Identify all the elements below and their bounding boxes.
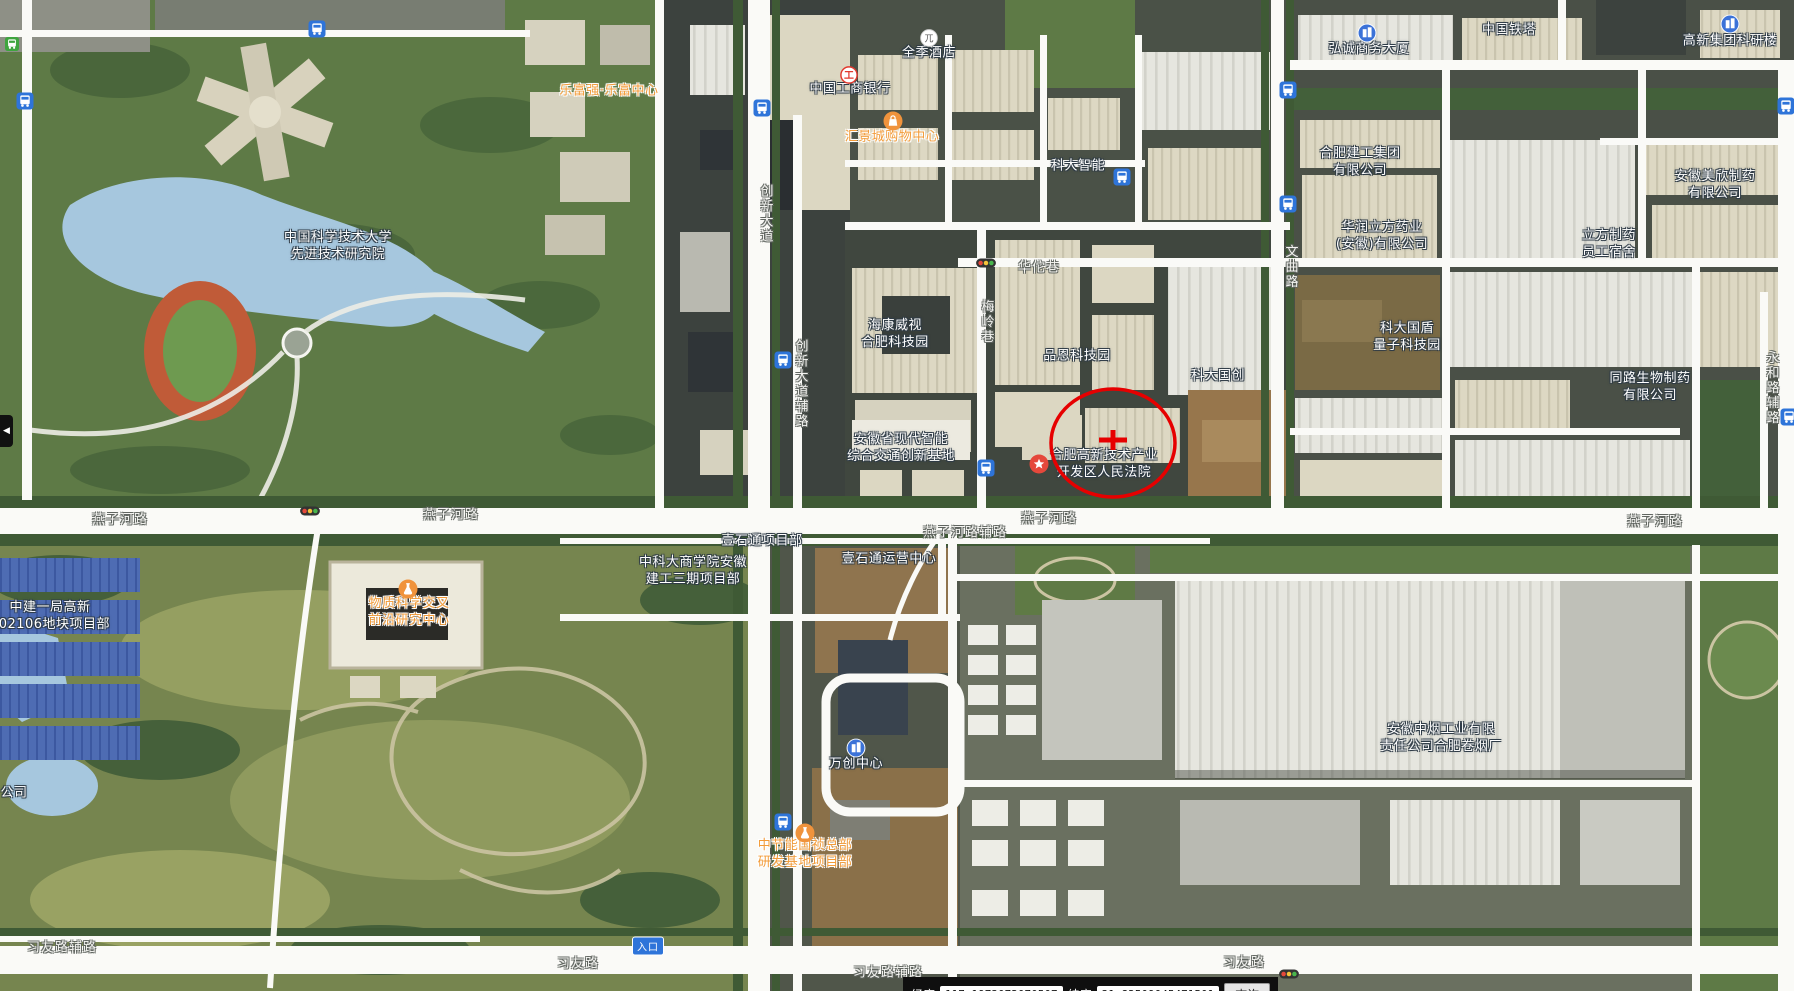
road-label: 习友路辅路 <box>27 937 97 956</box>
keda-guochuang-label[interactable]: 科大国创 <box>1191 369 1245 386</box>
traffic-light-icon <box>1279 970 1299 979</box>
bus-stop-icon[interactable] <box>754 100 771 117</box>
svg-text:兀: 兀 <box>924 35 933 45</box>
road-label: 华佗巷 <box>1018 257 1060 276</box>
road-label: 永和路辅路 <box>1762 351 1781 426</box>
collapse-arrow-icon: ◀ <box>3 426 10 436</box>
place-label-line: 前沿研究中心 <box>368 613 449 630</box>
court-poi-icon[interactable] <box>1030 455 1049 474</box>
zhongjieneng-guozhen-project-label[interactable]: 中节能国祯总部研发基地项目部 <box>758 838 853 872</box>
query-button[interactable]: 查询 <box>1224 983 1270 991</box>
place-label-line: 中国铁塔 <box>1482 23 1536 40</box>
science-project-poi-icon[interactable] <box>399 580 418 599</box>
place-label-line: 全季酒店 <box>902 46 956 63</box>
construction-project-poi-icon[interactable] <box>796 824 815 843</box>
place-label-line: 合肥科技园 <box>861 335 929 352</box>
bus-stop-icon[interactable] <box>1114 169 1131 186</box>
road-label: 燕子河路 <box>1627 511 1683 530</box>
latitude-label: 纬度 <box>1068 986 1092 991</box>
office-building-poi-icon[interactable] <box>847 739 866 758</box>
material-science-research-center-label[interactable]: 物质科学交叉前沿研究中心 <box>368 596 449 630</box>
entrance-badge: 入口 <box>632 937 664 956</box>
edge-clipped-company-label-label[interactable]: 公司 <box>0 786 27 803</box>
china-tower-label[interactable]: 中国铁塔 <box>1482 23 1536 40</box>
icbc-bank-label[interactable]: 中国工商银行 <box>809 82 890 99</box>
coordinate-statusbar: 经度 117.1973072070507 纬度 31.8250904547150… <box>903 977 1278 991</box>
traffic-light-icon <box>976 259 996 268</box>
place-label-line: 科大国创 <box>1191 369 1245 386</box>
keda-guodun-quantum-park-label[interactable]: 科大国盾量子科技园 <box>1373 321 1441 355</box>
bank-poi-icon[interactable]: 工 <box>840 66 858 84</box>
place-label-line: (安徽)有限公司 <box>1336 237 1428 254</box>
svg-text:工: 工 <box>844 71 854 82</box>
shopping-poi-icon[interactable] <box>884 112 903 131</box>
tonglu-bio-pharma-label[interactable]: 同路生物制药有限公司 <box>1609 371 1690 405</box>
place-label-line: 公司 <box>0 786 27 803</box>
traffic-light-icon <box>300 507 320 516</box>
place-label-line: 中国科学技术大学 <box>284 230 392 247</box>
hikvision-hefei-techpark-label[interactable]: 海康威视合肥科技园 <box>861 318 929 352</box>
road-label: 燕子河路 <box>1021 508 1077 527</box>
place-label-line: 安徽美欣制药 <box>1674 169 1755 186</box>
bus-stop-icon[interactable] <box>1778 98 1794 115</box>
place-label-line: 华润立方药业 <box>1336 220 1428 237</box>
place-label-line: 中建一局高新 <box>0 600 110 617</box>
hefei-jiangong-group-label[interactable]: 合肥建工集团有限公司 <box>1319 146 1400 180</box>
office-building-poi-icon[interactable] <box>1358 24 1377 43</box>
place-label-line: 高新集团科研楼 <box>1683 34 1778 51</box>
ustc-business-school-project-label[interactable]: 中科大商学院安徽建工三期项目部 <box>639 555 747 589</box>
anhui-intelligent-transport-base-label[interactable]: 安徽省现代智能综合交通创新基地 <box>847 432 955 466</box>
place-label-line: 汇景城购物中心 <box>845 130 940 147</box>
bus-stop-icon[interactable] <box>1280 196 1297 213</box>
bus-stop-icon[interactable] <box>5 37 19 51</box>
keda-intelligence-label[interactable]: 科大智能 <box>1051 159 1105 176</box>
place-label-line: 202106地块项目部 <box>0 617 110 634</box>
bus-stop-icon[interactable] <box>309 21 326 38</box>
place-label-line: 品恩科技园 <box>1043 349 1111 366</box>
gaoxin-group-research-building-label[interactable]: 高新集团科研楼 <box>1683 34 1778 51</box>
pinen-techpark-label[interactable]: 品恩科技园 <box>1043 349 1111 366</box>
huijingcheng-shopping-mall-label[interactable]: 汇景城购物中心 <box>845 130 940 147</box>
place-label-line: 安徽中烟工业有限 <box>1380 722 1502 739</box>
ustc-advanced-institute-label[interactable]: 中国科学技术大学先进技术研究院 <box>284 230 392 264</box>
place-label-line: 先进技术研究院 <box>284 247 392 264</box>
place-label-line: 研发基地项目部 <box>758 855 853 872</box>
yishitong-operation-center-label[interactable]: 壹石通运营中心 <box>842 552 937 569</box>
place-label-line: 中科大商学院安徽 <box>639 555 747 572</box>
place-label-line: 综合交通创新基地 <box>847 449 955 466</box>
hefei-hightech-court-label[interactable]: 合肥高新技术产业开发区人民法院 <box>1050 448 1158 482</box>
bus-stop-icon[interactable] <box>775 814 792 831</box>
bus-stop-icon[interactable] <box>17 93 34 110</box>
road-label: 习友路 <box>557 953 599 972</box>
ji-hotel-label[interactable]: 全季酒店 <box>902 46 956 63</box>
place-label-line: 万创中心 <box>829 757 883 774</box>
latitude-value[interactable]: 31.82509045471501 <box>1097 986 1220 991</box>
place-label-line: 同路生物制药 <box>1609 371 1690 388</box>
panel-collapse-tab[interactable]: ◀ <box>0 415 13 447</box>
place-label-line: 壹石通项目部 <box>721 534 802 551</box>
bus-stop-icon[interactable] <box>775 352 792 369</box>
place-label-line: 量子科技园 <box>1373 338 1441 355</box>
place-label-line: 有限公司 <box>1319 163 1400 180</box>
bus-stop-icon[interactable] <box>1280 82 1297 99</box>
huarun-lifang-pharma-label[interactable]: 华润立方药业(安徽)有限公司 <box>1336 220 1428 254</box>
place-label-line: 建工三期项目部 <box>639 572 747 589</box>
place-label-line: 乐富强·乐富中心 <box>559 84 658 101</box>
longitude-value[interactable]: 117.1973072070507 <box>940 986 1063 991</box>
place-label-line: 物质科学交叉 <box>368 596 449 613</box>
road-label: 燕子河路辅路 <box>923 522 1007 541</box>
place-label-line: 弘诚商务大厦 <box>1328 42 1409 59</box>
place-label-line: 壹石通运营中心 <box>842 552 937 569</box>
place-label-line: 开发区人民法院 <box>1050 465 1158 482</box>
place-label-line: 科大智能 <box>1051 159 1105 176</box>
place-label-line: 安徽省现代智能 <box>847 432 955 449</box>
road-label: 文曲路 <box>1281 245 1300 290</box>
yishitong-project-dept-label[interactable]: 壹石通项目部 <box>721 534 802 551</box>
road-label: 梅岭巷 <box>977 300 996 345</box>
road-label: 习友路 <box>1223 952 1265 971</box>
lefuqiang-center-label[interactable]: 乐富强·乐富中心 <box>559 84 658 101</box>
road-label: 燕子河路 <box>92 509 148 528</box>
place-label-line: 合肥高新技术产业 <box>1050 448 1158 465</box>
place-label-line: 中国工商银行 <box>809 82 890 99</box>
place-label-line: 有限公司 <box>1609 388 1690 405</box>
place-label-line: 责任公司合肥卷烟厂 <box>1380 739 1502 756</box>
hotel-poi-icon[interactable]: 兀 <box>920 29 938 47</box>
place-label-line: 海康威视 <box>861 318 929 335</box>
lifang-pharma-dormitory-label[interactable]: 立方制药员工宿舍 <box>1582 228 1636 262</box>
road-label: 创新大道辅路 <box>791 339 810 429</box>
place-label-line: 科大国盾 <box>1373 321 1441 338</box>
longitude-label: 经度 <box>911 986 935 991</box>
hongcheng-business-building-label[interactable]: 弘诚商务大厦 <box>1328 42 1409 59</box>
place-label-line: 立方制药 <box>1582 228 1636 245</box>
place-label-line: 有限公司 <box>1674 186 1755 203</box>
zhongjian-project-dept-label[interactable]: 中建一局高新202106地块项目部 <box>0 600 110 634</box>
anhui-meixin-pharma-label[interactable]: 安徽美欣制药有限公司 <box>1674 169 1755 203</box>
road-label: 创新大道 <box>756 184 775 244</box>
office-building-poi-icon[interactable] <box>1721 15 1740 34</box>
map-label-layer: 中国科学技术大学先进技术研究院乐富强·乐富中心全季酒店中国工商银行汇景城购物中心… <box>0 0 1794 991</box>
place-label-line: 合肥建工集团 <box>1319 146 1400 163</box>
place-label-line: 员工宿舍 <box>1582 245 1636 262</box>
map-viewport[interactable]: 中国科学技术大学先进技术研究院乐富强·乐富中心全季酒店中国工商银行汇景城购物中心… <box>0 0 1794 991</box>
bus-stop-icon[interactable] <box>978 460 995 477</box>
anhui-zhongyan-cigarette-factory-label[interactable]: 安徽中烟工业有限责任公司合肥卷烟厂 <box>1380 722 1502 756</box>
road-label: 燕子河路 <box>423 504 479 523</box>
wanchuang-center-label[interactable]: 万创中心 <box>829 757 883 774</box>
bus-stop-icon[interactable] <box>1781 409 1794 426</box>
